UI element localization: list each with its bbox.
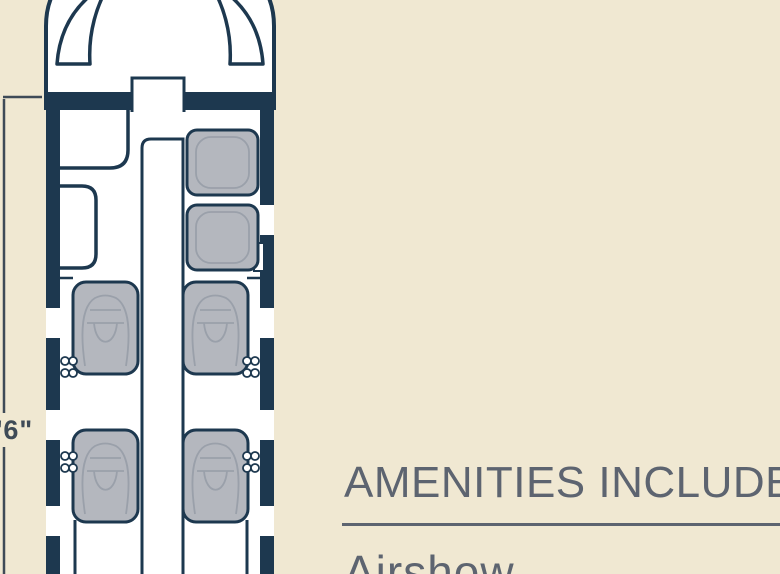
amenities-heading: AMENITIES INCLUDE [344,461,780,505]
dimension-label: '6" [0,413,36,447]
amenities-item: Airshow [344,547,515,574]
amenities-section: AMENITIES INCLUDE Airshow [0,0,780,574]
amenities-divider [342,523,780,526]
